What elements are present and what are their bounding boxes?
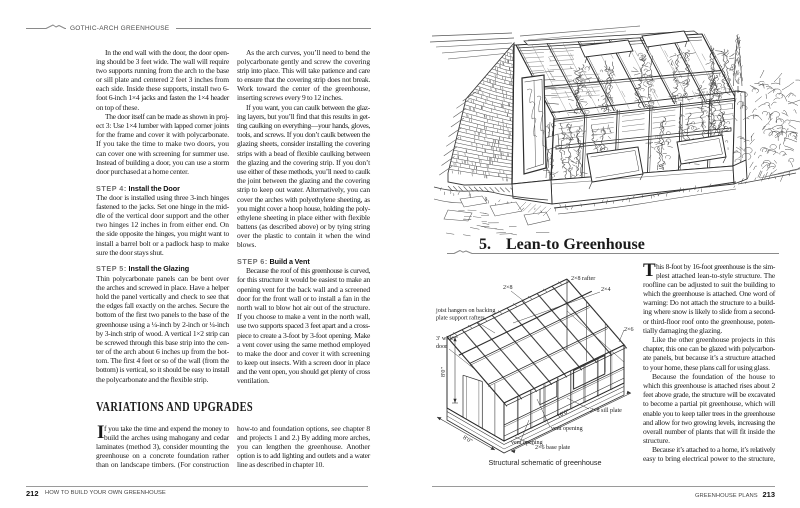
svg-text:2×6 base plate: 2×6 base plate [535,445,571,451]
svg-text:vent opening: vent opening [551,426,583,432]
svg-text:plate support rafters: plate support rafters [436,315,485,322]
svg-text:2×8 sill plate: 2×8 sill plate [590,408,622,414]
svg-text:joist hangers on backing: joist hangers on backing [435,308,495,314]
svg-text:door: door [436,344,447,350]
svg-text:2×6: 2×6 [624,327,634,333]
svg-text:2×8 rafter: 2×8 rafter [571,275,595,282]
svg-text:2×4: 2×4 [601,287,611,293]
svg-text:3′ wide: 3′ wide [436,336,454,342]
svg-text:2×8: 2×8 [503,285,513,291]
svg-text:8′0″: 8′0″ [441,367,447,377]
